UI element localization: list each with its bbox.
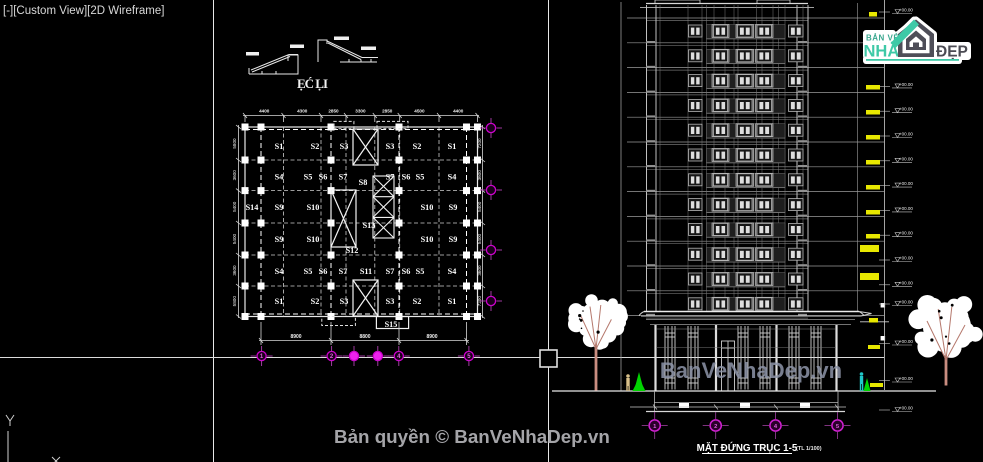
svg-text:S6: S6 — [402, 267, 411, 276]
svg-text:+00.00: +00.00 — [899, 206, 913, 211]
svg-text:S7: S7 — [386, 173, 395, 182]
svg-text:S7: S7 — [339, 173, 348, 182]
svg-text:+00.00: +00.00 — [899, 132, 913, 137]
svg-text:S5: S5 — [416, 267, 425, 276]
svg-text:4400: 4400 — [453, 109, 464, 114]
svg-text:7200: 7200 — [477, 138, 482, 149]
svg-text:S10: S10 — [421, 235, 434, 244]
svg-text:+00.00: +00.00 — [899, 300, 913, 305]
svg-text:+00.00: +00.00 — [899, 406, 913, 411]
svg-text:2850: 2850 — [328, 109, 339, 114]
svg-text:+00.00: +00.00 — [899, 376, 913, 381]
svg-text:S10: S10 — [307, 203, 320, 212]
svg-text:S4: S4 — [448, 173, 457, 182]
svg-text:5800: 5800 — [232, 296, 237, 307]
svg-text:S2: S2 — [311, 297, 320, 306]
svg-text:S9: S9 — [275, 235, 284, 244]
svg-text:S7: S7 — [339, 267, 348, 276]
svg-text:S9: S9 — [449, 203, 458, 212]
svg-text:5800: 5800 — [232, 138, 237, 149]
svg-text:+00.00: +00.00 — [899, 107, 913, 112]
svg-text:ẸĆ ḶI: ẸĆ ḶI — [297, 76, 328, 91]
svg-text:S5: S5 — [304, 173, 313, 182]
svg-text:3300: 3300 — [355, 109, 366, 114]
svg-text:S10: S10 — [421, 203, 434, 212]
svg-text:S4: S4 — [275, 173, 284, 182]
svg-text:2: 2 — [714, 424, 717, 430]
svg-text:S9: S9 — [275, 203, 284, 212]
svg-text:S1: S1 — [275, 142, 284, 151]
svg-text:8800: 8800 — [359, 334, 370, 340]
svg-text:3600: 3600 — [477, 265, 482, 276]
svg-text:S3: S3 — [386, 297, 395, 306]
svg-text:S5: S5 — [304, 267, 313, 276]
svg-text:+00.00: +00.00 — [899, 231, 913, 236]
svg-text:S12: S12 — [346, 246, 359, 255]
svg-text:S5: S5 — [416, 173, 425, 182]
svg-text:S6: S6 — [319, 267, 328, 276]
svg-text:5400: 5400 — [232, 233, 237, 244]
svg-text:S4: S4 — [275, 267, 284, 276]
svg-text:5400: 5400 — [477, 233, 482, 244]
svg-text:3600: 3600 — [232, 170, 237, 181]
svg-text:2850: 2850 — [382, 109, 393, 114]
svg-text:S8: S8 — [359, 178, 368, 187]
svg-text:S2: S2 — [413, 297, 422, 306]
svg-text:5400: 5400 — [477, 201, 482, 212]
svg-text:5400: 5400 — [232, 201, 237, 212]
svg-text:+00.00: +00.00 — [899, 156, 913, 161]
svg-text:+00.00: +00.00 — [899, 82, 913, 87]
svg-text:+00.00: +00.00 — [899, 339, 913, 344]
svg-text:BanVeNhaDep.vn: BanVeNhaDep.vn — [660, 358, 842, 383]
svg-text:+00.00: +00.00 — [899, 181, 913, 186]
svg-text:MẶT ĐỨNG TRỤC 1-5: MẶT ĐỨNG TRỤC 1-5 — [697, 442, 798, 454]
svg-text:S3: S3 — [340, 142, 349, 151]
svg-text:S13: S13 — [363, 221, 376, 230]
svg-text:+00.00: +00.00 — [899, 280, 913, 285]
svg-text:+00.00: +00.00 — [899, 8, 913, 13]
svg-text:S2: S2 — [413, 142, 422, 151]
svg-text:S9: S9 — [449, 235, 458, 244]
svg-text:S11: S11 — [360, 267, 372, 276]
svg-text:(TL 1/100): (TL 1/100) — [796, 446, 822, 452]
svg-text:S3: S3 — [340, 297, 349, 306]
svg-text:S6: S6 — [402, 173, 411, 182]
svg-text:3600: 3600 — [477, 170, 482, 181]
svg-text:S3: S3 — [386, 142, 395, 151]
svg-text:4500: 4500 — [414, 109, 425, 114]
svg-text:4400: 4400 — [259, 109, 270, 114]
svg-text:4300: 4300 — [297, 109, 308, 114]
svg-text:S6: S6 — [319, 173, 328, 182]
svg-text:8900: 8900 — [290, 334, 301, 340]
svg-text:S1: S1 — [448, 297, 457, 306]
svg-text:ĐẸP: ĐẸP — [936, 44, 968, 61]
svg-text:S1: S1 — [448, 142, 457, 151]
svg-text:3600: 3600 — [232, 265, 237, 276]
svg-text:S15: S15 — [385, 320, 398, 329]
svg-text:8900: 8900 — [426, 334, 437, 340]
svg-text:S14: S14 — [246, 203, 259, 212]
svg-text:S2: S2 — [311, 142, 320, 151]
svg-text:S4: S4 — [448, 267, 457, 276]
svg-text:+00.00: +00.00 — [899, 256, 913, 261]
svg-text:S10: S10 — [307, 235, 320, 244]
svg-text:S7: S7 — [386, 267, 395, 276]
svg-text:S1: S1 — [275, 297, 284, 306]
